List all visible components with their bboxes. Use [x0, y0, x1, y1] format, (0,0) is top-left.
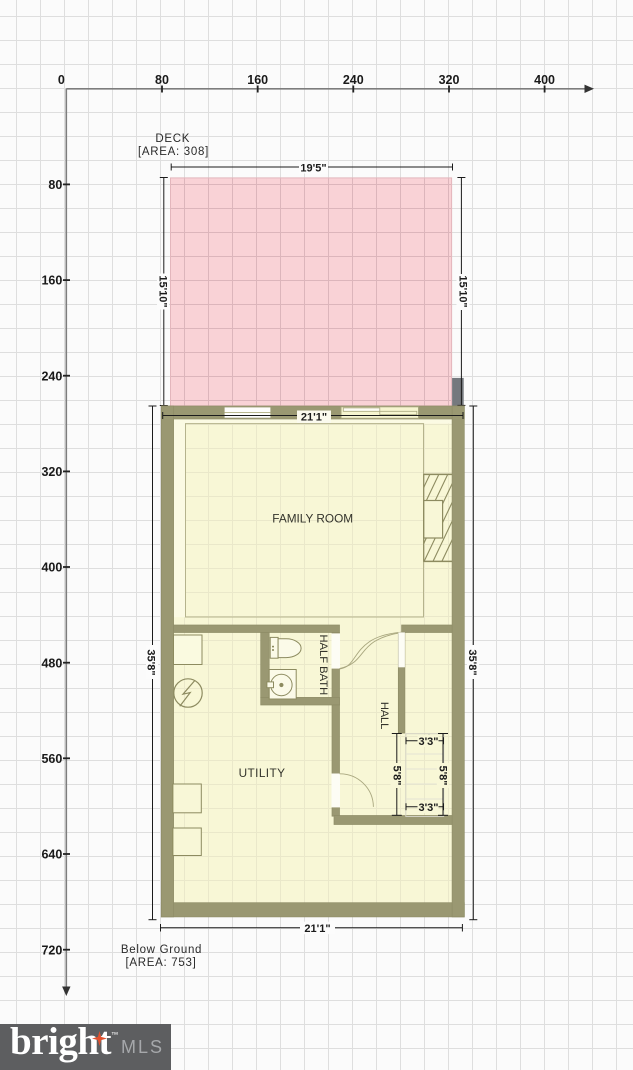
svg-text:0: 0 — [58, 73, 65, 87]
svg-text:15'10": 15'10" — [457, 275, 469, 307]
svg-text:UTILITY: UTILITY — [239, 766, 286, 780]
svg-text:HALL: HALL — [378, 702, 390, 729]
svg-text:3'3": 3'3" — [418, 802, 438, 814]
svg-text:5'8": 5'8" — [437, 765, 449, 785]
svg-text:[AREA: 753]: [AREA: 753] — [126, 957, 197, 969]
svg-text:640: 640 — [41, 848, 62, 862]
svg-text:240: 240 — [343, 73, 364, 87]
svg-text:560: 560 — [41, 752, 62, 766]
svg-text:[AREA: 308]: [AREA: 308] — [138, 146, 209, 158]
svg-text:19'5": 19'5" — [300, 163, 326, 175]
svg-text:21'1": 21'1" — [304, 923, 330, 935]
svg-text:320: 320 — [41, 465, 62, 479]
svg-text:3'3": 3'3" — [418, 736, 438, 748]
svg-text:35'8": 35'8" — [145, 649, 157, 675]
svg-text:Below Ground: Below Ground — [121, 944, 202, 956]
svg-text:FAMILY ROOM: FAMILY ROOM — [272, 511, 353, 525]
svg-text:400: 400 — [41, 561, 62, 575]
svg-text:400: 400 — [534, 73, 555, 87]
svg-text:5'8": 5'8" — [390, 765, 402, 785]
svg-text:HALF BATH: HALF BATH — [317, 634, 329, 695]
svg-text:15'10": 15'10" — [156, 275, 168, 307]
svg-text:35'8": 35'8" — [466, 649, 478, 675]
svg-text:160: 160 — [247, 73, 268, 87]
svg-text:320: 320 — [439, 73, 460, 87]
svg-text:80: 80 — [155, 73, 169, 87]
svg-text:80: 80 — [48, 178, 62, 192]
svg-text:160: 160 — [41, 274, 62, 288]
svg-text:DECK: DECK — [155, 133, 190, 145]
svg-text:480: 480 — [41, 656, 62, 670]
svg-text:240: 240 — [41, 369, 62, 383]
svg-text:720: 720 — [41, 943, 62, 957]
svg-text:21'1": 21'1" — [301, 412, 327, 424]
